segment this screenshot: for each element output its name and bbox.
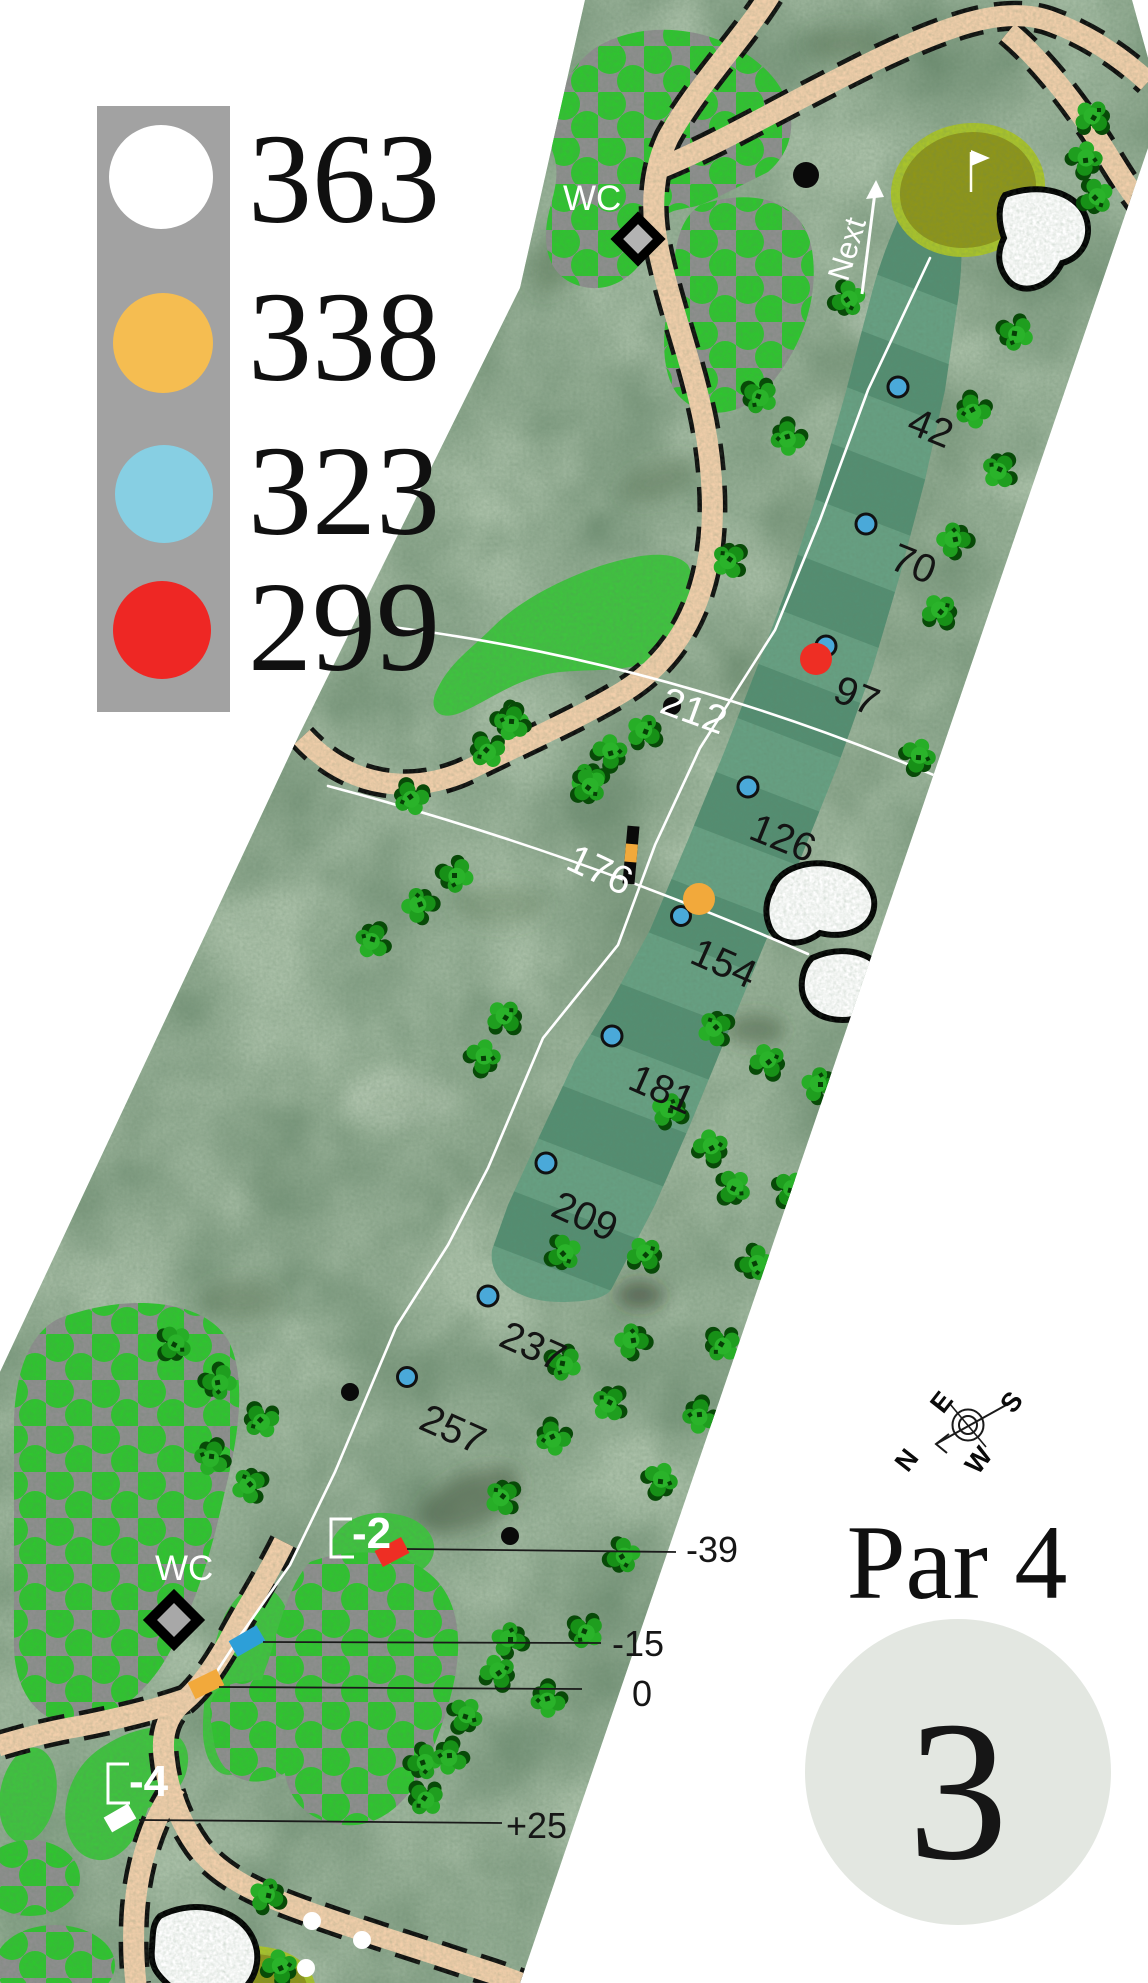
red-tee-icon (113, 581, 211, 679)
tee-distance-legend: 363 338 323 299 (97, 106, 440, 712)
hole-number-badge: 3 (805, 1619, 1111, 1925)
golf-hole-map-page: WC WC Next 42 70 97 126 154 181 209 237 … (0, 0, 1148, 1983)
compass-north: N (889, 1443, 925, 1477)
yellow-distance-dot (683, 883, 715, 915)
tee-sign-minus2-label: -2 (352, 1509, 391, 1558)
blue-tee-icon (115, 445, 213, 543)
compass-east: E (924, 1386, 959, 1419)
course-map: WC WC Next 42 70 97 126 154 181 209 237 … (0, 0, 1148, 1983)
par-label: Par 4 (847, 1504, 1068, 1621)
legend-distance-yellow: 338 (248, 266, 440, 408)
legend-distance-white: 363 (248, 108, 440, 250)
compass-rose: N E S W (889, 1386, 1029, 1480)
compass-south: S (994, 1386, 1029, 1419)
elevation-label-yellow: 0 (632, 1673, 652, 1714)
legend-distance-blue: 323 (248, 420, 440, 562)
tee-sign-minus4-label: -4 (129, 1757, 169, 1806)
red-distance-dot (800, 643, 832, 675)
yellow-tee-icon (113, 293, 213, 393)
hole-number: 3 (908, 1681, 1008, 1902)
legend-distance-red: 299 (248, 556, 440, 698)
elevation-label-red: -39 (686, 1529, 738, 1570)
white-tee-icon (109, 125, 213, 229)
wc-label-top: WC (563, 179, 621, 218)
elevation-label-blue: -15 (612, 1623, 664, 1664)
compass-west: W (959, 1440, 999, 1479)
wc-label-bottom: WC (155, 1549, 213, 1588)
elevation-label-white: +25 (506, 1805, 567, 1846)
